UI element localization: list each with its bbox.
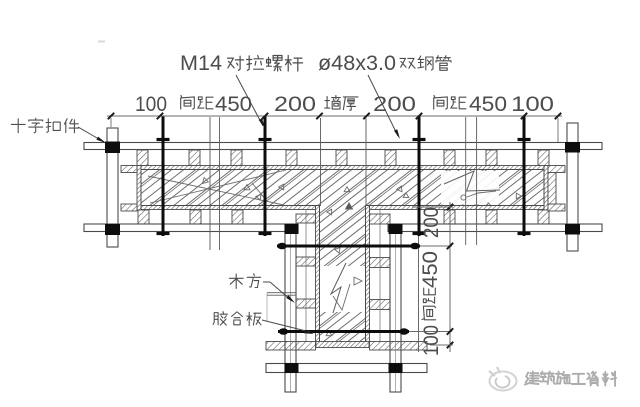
svg-text:M14: M14 [180, 52, 222, 75]
svg-text:100: 100 [511, 92, 554, 116]
svg-text:200: 200 [274, 92, 316, 116]
svg-text:450: 450 [418, 251, 442, 288]
svg-text:200: 200 [373, 92, 416, 116]
svg-text:200: 200 [419, 207, 443, 238]
svg-text:ø48x3.0: ø48x3.0 [318, 52, 396, 75]
svg-text:450: 450 [469, 92, 507, 116]
svg-text:100: 100 [419, 325, 443, 356]
svg-text:100: 100 [135, 92, 167, 116]
